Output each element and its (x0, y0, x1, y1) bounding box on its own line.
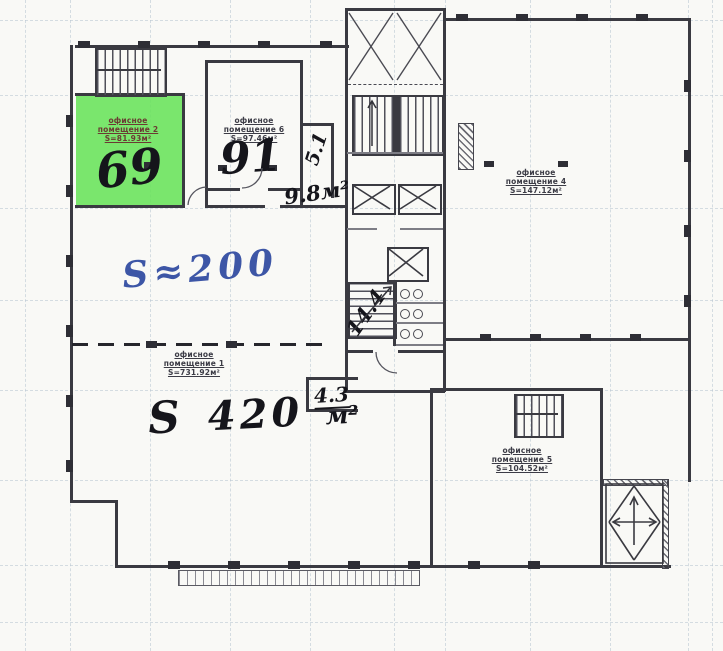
column-marker (528, 561, 540, 569)
axis-line (0, 622, 723, 623)
column-marker (580, 334, 591, 341)
handwritten-area-5-1: 5.1 (301, 130, 332, 168)
landing-wall (347, 152, 443, 154)
handwritten-area-s420: S 420 м² (147, 383, 360, 445)
column-marker (456, 14, 468, 21)
stair-landing-line (97, 69, 161, 71)
wall-segment (345, 350, 373, 353)
s420-prefix: S (147, 392, 181, 445)
column-marker (66, 185, 73, 197)
axis-line (310, 0, 311, 651)
room-4-name-line1: офисное (492, 168, 580, 177)
corridor-wall (400, 228, 443, 230)
wall-segment (345, 8, 445, 11)
column-marker (78, 41, 90, 48)
ramp-wall (603, 479, 668, 486)
axis-line (25, 0, 26, 651)
room-4-area: S=147.12м² (492, 186, 580, 195)
column-marker (66, 255, 73, 267)
axis-line (610, 0, 611, 651)
wall-segment (205, 60, 303, 63)
column-marker (226, 341, 237, 348)
stairs-core-right-flight (398, 95, 444, 156)
room-5-name-line1: офисное (478, 446, 566, 455)
toilet-fixture-icon (413, 309, 423, 319)
column-marker (138, 41, 150, 48)
column-marker (66, 325, 73, 337)
wall-segment (430, 388, 433, 568)
column-marker (168, 561, 180, 569)
column-marker (348, 561, 360, 569)
wall-segment (70, 500, 118, 503)
wall-segment (115, 565, 671, 568)
s420-unit: м² (325, 400, 360, 431)
wc-stall-divider (396, 322, 443, 324)
wc-wall (393, 282, 396, 346)
axis-line (530, 0, 531, 651)
wall-segment (430, 388, 603, 391)
column-marker (468, 561, 480, 569)
room-5-area: S=104.52м² (478, 464, 566, 473)
room-5-name-line2: помещение 5 (478, 455, 566, 464)
wall-segment (345, 390, 445, 393)
exterior-steps (178, 570, 420, 586)
column-marker (576, 14, 588, 21)
room-1-name-line1: офисное (150, 350, 238, 359)
handwritten-area-s200: S≈200 (120, 241, 279, 296)
column-marker (288, 561, 300, 569)
room-6-name-line1: офисное (210, 116, 298, 125)
column-marker (146, 341, 157, 348)
room-6-handwritten-number: 91 (218, 130, 283, 185)
floor-plan-scan: офисное помещение 2 S=81.93м² офисное по… (0, 0, 723, 651)
room-2-name-line2: помещение 2 (86, 125, 170, 134)
column-marker (66, 115, 73, 127)
room-5-label: офисное помещение 5 S=104.52м² (478, 446, 566, 473)
axis-line (230, 0, 231, 651)
column-marker (530, 334, 541, 341)
wall-segment (306, 377, 358, 380)
toilet-fixture-icon (413, 289, 423, 299)
column-marker (480, 334, 491, 341)
toilet-fixture-icon (400, 309, 410, 319)
wall-segment (75, 205, 185, 208)
column-marker (66, 395, 73, 407)
room-2-name-line1: офисное (86, 116, 170, 125)
room-1-area: S=731.92м² (150, 368, 238, 377)
wall-segment (600, 388, 603, 568)
column-marker (408, 561, 420, 569)
column-marker (198, 41, 210, 48)
column-marker (228, 561, 240, 569)
axis-line (712, 0, 713, 651)
elevator-shaft-1 (352, 184, 396, 215)
room-4-name-line2: помещение 4 (492, 177, 580, 186)
wall-segment (70, 45, 73, 503)
stair-landing-line (516, 413, 558, 415)
ramp-wall (662, 479, 669, 569)
room-4-label: офисное помещение 4 S=147.12м² (492, 168, 580, 195)
wall-segment (205, 60, 208, 208)
room-1-label: офисное помещение 1 S=731.92м² (150, 350, 238, 377)
toilet-fixture-icon (400, 289, 410, 299)
toilet-fixture-icon (413, 329, 423, 339)
elevator-shaft-2 (398, 184, 442, 215)
column-marker (684, 80, 691, 92)
s420-value: 420 (207, 388, 305, 440)
wall-segment (205, 188, 240, 191)
wall-segment (182, 93, 185, 208)
column-marker (258, 41, 270, 48)
column-marker (630, 334, 641, 341)
wc-stall-divider (396, 344, 443, 346)
column-marker (516, 14, 528, 21)
column-marker (636, 14, 648, 21)
toilet-fixture-icon (400, 329, 410, 339)
column-marker (484, 161, 494, 167)
room-2-handwritten-number: 69 (93, 138, 165, 201)
stairs-core-left-flight (352, 95, 398, 156)
column-marker (684, 295, 691, 307)
stairwell-room5 (514, 394, 564, 438)
column-marker (66, 460, 73, 472)
temporary-partition-dashed (72, 343, 332, 346)
wall-segment (445, 18, 691, 21)
column-marker (684, 150, 691, 162)
room-1-name-line2: помещение 1 (150, 359, 238, 368)
wall-segment (205, 205, 265, 208)
column-marker (320, 41, 332, 48)
vestibule-canopy (349, 13, 441, 80)
corridor-wall (347, 228, 377, 230)
vent-shaft (387, 247, 429, 282)
wall-segment (398, 350, 445, 353)
wc-stall-divider (396, 302, 443, 304)
stair-divider-wall (393, 95, 396, 152)
wall-segment (300, 123, 334, 126)
duct-shaft (458, 123, 474, 170)
wall-segment (443, 8, 446, 392)
column-marker (684, 225, 691, 237)
wall-segment (115, 500, 118, 568)
column-marker (558, 161, 568, 167)
core-threshold-line (348, 84, 443, 85)
ramp-diamond (606, 484, 663, 563)
stairwell-top-left (95, 48, 167, 97)
